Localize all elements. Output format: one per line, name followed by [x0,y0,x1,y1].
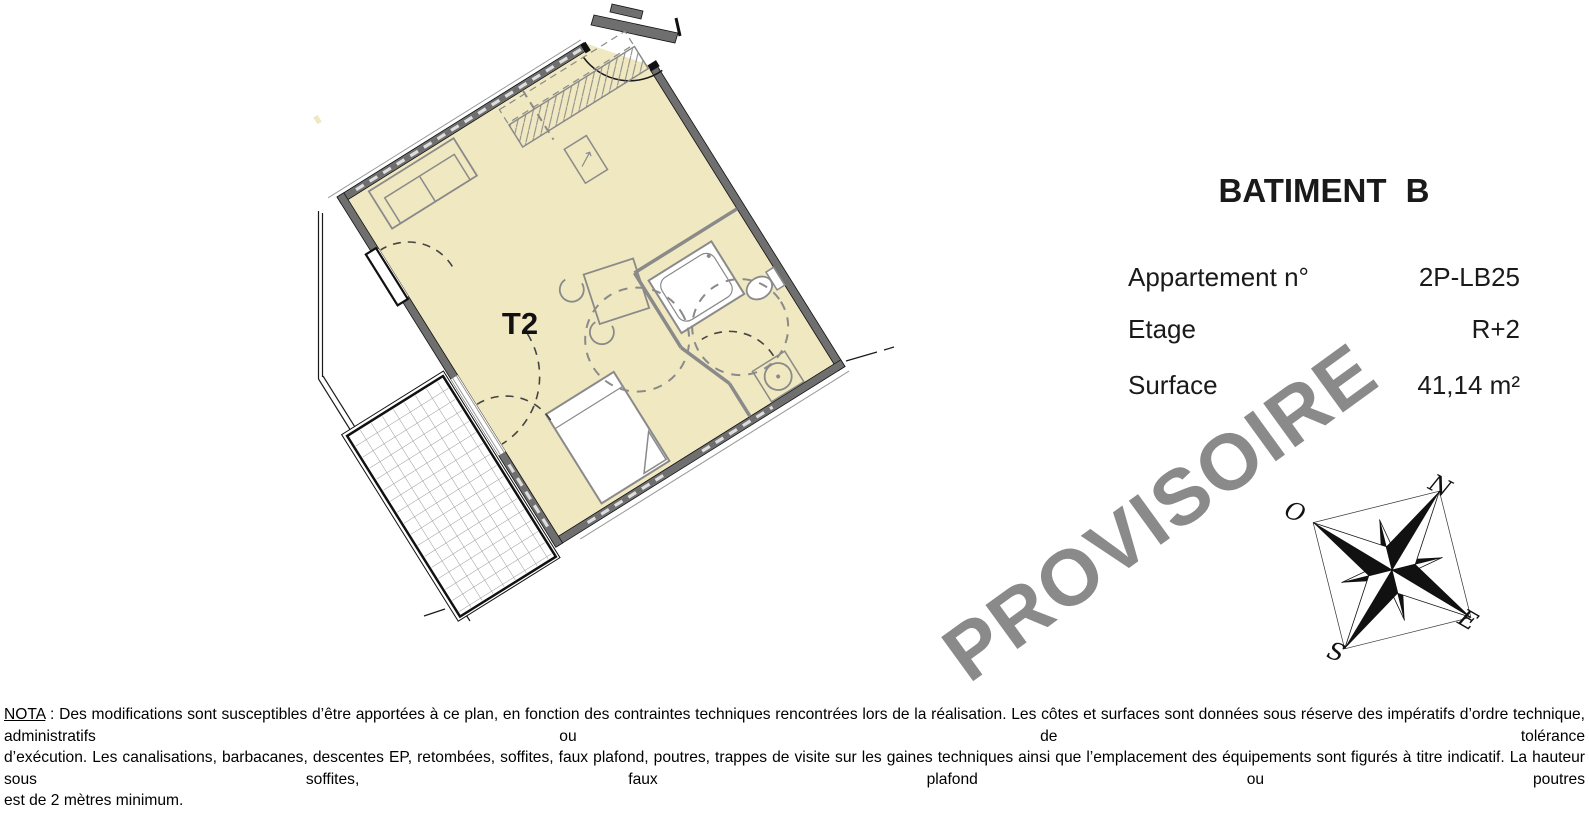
nota-label: NOTA [4,706,45,723]
apartment-number-row: Appartement n° 2P-LB25 [1128,262,1520,293]
paint-speck [313,115,321,124]
floor-row: Etage R+2 [1128,314,1520,345]
floor-label: Etage [1128,314,1196,345]
nota-disclaimer: NOTA : Des modifications sont susceptibl… [4,704,1585,812]
nota-line-2: d’exécution. Les canalisations, barbacan… [4,747,1585,790]
nota-line-1-text: : Des modifications sont susceptibles d’… [4,706,1585,745]
surface-label: Surface [1128,370,1218,401]
surface-row: Surface 41,14 m² [1128,370,1520,401]
building-title: BATIMENT B [1128,172,1520,210]
nota-line-1: NOTA : Des modifications sont susceptibl… [4,704,1585,747]
unit-type-label: T2 [480,306,560,342]
floor-plan-sheet: { "plan": { "unit_label": "T2" }, "water… [0,0,1589,782]
surface-value: 41,14 m² [1417,370,1520,401]
floor-value: R+2 [1472,314,1520,345]
apartment-number-value: 2P-LB25 [1419,262,1520,293]
apartment-number-label: Appartement n° [1128,262,1309,293]
party-wall-stub [591,4,680,43]
compass-rose [1266,444,1518,696]
nota-line-3: est de 2 mètres minimum. [4,790,1585,812]
